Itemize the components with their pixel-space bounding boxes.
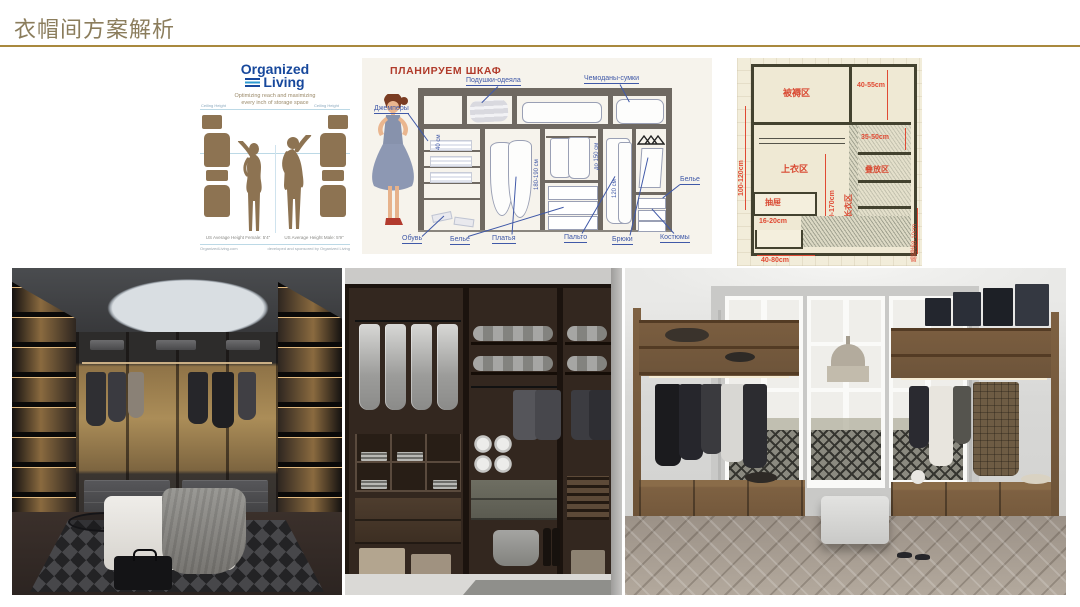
label-tag-left	[206, 170, 228, 181]
drawer-stack	[355, 498, 461, 544]
hanging-jacket	[701, 384, 723, 454]
label-dresses: Платья	[492, 235, 516, 244]
ceiling-line	[200, 109, 350, 110]
dim-drawer: 16-20cm	[759, 218, 787, 225]
drawer-e3	[638, 221, 666, 232]
wardrobe-right-bar	[666, 88, 672, 232]
hanging-garment	[108, 372, 126, 422]
slatted-drawers	[567, 476, 609, 520]
page-title: 衣帽间方案解析	[14, 12, 175, 44]
top-divider	[849, 67, 852, 123]
shelf	[471, 342, 557, 345]
right-upper-shelves	[891, 328, 1053, 378]
hanging-garment	[86, 372, 106, 426]
zone-bedding: 被褥区	[783, 86, 810, 99]
shelf	[471, 372, 557, 375]
footer-left: OrganizedLiving.com	[200, 246, 238, 251]
label-suits: Костюмы	[660, 234, 690, 243]
woman-illustration	[364, 94, 422, 234]
hanging-coat	[655, 384, 681, 466]
footer-rule	[200, 244, 350, 245]
right-shelf-1	[858, 152, 911, 155]
title-divider	[0, 45, 1080, 47]
briefcase-handle	[133, 549, 157, 561]
ceiling-label-right: Ceiling Height	[314, 103, 339, 108]
drawer-box	[753, 192, 817, 216]
tagline-line1: Optimizing reach and maximizing	[196, 93, 354, 100]
shelf	[565, 372, 611, 375]
shelf-light	[901, 378, 1047, 380]
folded-stack-3	[430, 172, 472, 183]
wardrobe-unit	[345, 284, 611, 574]
dim-bottom-line	[757, 255, 815, 256]
folded-clothes	[156, 340, 196, 350]
shelf-light	[649, 376, 789, 378]
hanging-shirt	[359, 324, 380, 410]
handbag	[493, 530, 539, 566]
female-silhouette	[234, 141, 274, 233]
glass-drawers	[471, 480, 557, 520]
rolled-blanket	[567, 356, 607, 371]
bottom-hatched-area	[801, 216, 911, 247]
shelf-light-strip	[82, 362, 272, 364]
dim-dresses: 180-190 см	[534, 159, 540, 190]
label-linen-right: Белье	[680, 176, 700, 185]
shelf-e	[636, 192, 666, 195]
wardrobe-plan-title: ПЛАНИРУЕМ ШКАФ	[390, 65, 501, 77]
hanging-garment	[128, 372, 144, 418]
garment-short-right	[320, 185, 346, 217]
hanging-garment	[238, 372, 256, 420]
label-pillows: Подушки-одеяла	[466, 77, 521, 86]
folded-stack	[361, 480, 387, 489]
label-shoes: Обувь	[402, 235, 422, 244]
hanging-shirt	[411, 324, 432, 410]
hat	[725, 352, 755, 362]
hanging-garment	[188, 372, 208, 424]
dim-skirting: 踢脚线8-10cm	[909, 224, 918, 262]
rolled-blanket	[567, 326, 607, 341]
straw-hat	[1021, 474, 1051, 484]
storage-box-right	[328, 115, 348, 129]
label-coats: Пальто	[564, 234, 587, 243]
logo-bars-icon	[245, 78, 260, 88]
side-wall	[611, 268, 622, 595]
rug	[463, 580, 622, 595]
wardrobe-left-bar	[418, 88, 424, 232]
boot	[543, 528, 551, 566]
basket-bowl	[665, 328, 709, 342]
dim-left: 100-120cm	[738, 160, 745, 196]
hanging-dress	[929, 386, 953, 466]
zone-tops: 上衣区	[781, 162, 808, 175]
window-center	[807, 296, 885, 488]
photo-walkin-closet-dark	[12, 268, 342, 595]
zone-long: 长衣区	[843, 194, 854, 218]
drawer-c1	[548, 186, 598, 200]
zone-drawer: 抽屉	[765, 197, 781, 208]
shoe-sketch-2	[454, 217, 475, 228]
shelf-c	[545, 180, 598, 183]
photo-walkin-closet-bright	[625, 268, 1066, 595]
right-shelf-2	[858, 180, 911, 183]
briefcase	[114, 556, 172, 590]
ceiling-label-left: Ceiling Height	[201, 103, 226, 108]
balcony-railing	[811, 430, 881, 480]
dim-right-line	[905, 128, 906, 150]
folded-clothes	[226, 340, 260, 350]
boot	[552, 528, 560, 566]
top-separator-2	[512, 96, 517, 124]
footer-right: developed and sponsored by Organized Liv…	[267, 246, 350, 251]
hanging-coat	[743, 384, 767, 468]
dome-drum	[827, 366, 869, 382]
garment-tall-left	[204, 133, 230, 167]
hanging-rod	[759, 138, 845, 144]
label-jumpers: Джемперы	[374, 105, 409, 114]
pillows-sketch	[469, 99, 508, 123]
hangers-icon	[637, 134, 665, 146]
dim-shelf: 40 см	[436, 135, 442, 150]
male-silhouette	[272, 135, 316, 233]
garment-tall-right	[320, 133, 346, 167]
dim-top: 40-55cm	[857, 82, 885, 89]
logo-row: Living	[196, 76, 354, 89]
hanging-garment	[212, 372, 234, 428]
dim-bottom: 40-80cm	[761, 257, 789, 264]
folded-stack	[433, 480, 457, 489]
top-shelf	[424, 124, 666, 129]
caption-female: US Average Height Female: 5'4"	[202, 235, 274, 240]
hanging-coat	[679, 384, 703, 460]
label-tag-right	[322, 170, 344, 181]
folded-stack	[397, 452, 423, 461]
shirt-sketch-2	[568, 137, 590, 179]
suitcase-small	[522, 102, 602, 123]
dim-left-line	[745, 106, 746, 210]
diagram-wardrobe-plan: ПЛАНИРУЕМ ШКАФ 180-190 см	[362, 58, 712, 254]
dim-top-line	[887, 70, 888, 120]
hanging-shirt	[385, 324, 406, 410]
suitcase-large	[616, 99, 664, 124]
dim-coats: 120 см	[612, 179, 618, 198]
hanging-garment	[909, 386, 929, 448]
top-separator-1	[462, 96, 467, 124]
folded-stack-2	[430, 156, 472, 167]
hanging-tshirt	[535, 390, 561, 440]
dim-shirts: до 150 см	[594, 143, 600, 170]
shelf-a4	[424, 198, 480, 200]
garment-short-left	[204, 185, 230, 217]
folded-stack	[361, 452, 387, 461]
frame-post-1	[463, 284, 469, 574]
left-upper-shelves	[639, 320, 799, 376]
top-separator-3	[608, 96, 613, 124]
storage-box-left	[202, 115, 222, 129]
shoe	[915, 554, 930, 560]
folded-clothes	[90, 340, 124, 350]
photo-wardrobe-brown	[345, 268, 622, 595]
checked-coat	[973, 382, 1019, 476]
ottoman	[821, 496, 889, 544]
hat-boxes	[473, 434, 513, 474]
wardrobe-top-bar	[418, 88, 672, 96]
caption-male: US Average Height Male: 5'9"	[278, 235, 350, 240]
divider-1	[480, 129, 485, 230]
wardrobe-bottom-edge	[418, 230, 672, 232]
coat-sketch-2	[618, 142, 632, 224]
rolled-blanket	[473, 326, 553, 341]
right-shelf-3	[858, 206, 911, 209]
label-trousers: Брюки	[612, 236, 633, 245]
vase	[911, 470, 925, 484]
storage-box-top	[1015, 284, 1049, 326]
frame-top	[345, 284, 611, 288]
bottom-left-cell	[755, 230, 803, 249]
hanging-rod	[355, 320, 461, 322]
zone-stack: 叠放区	[865, 164, 889, 175]
dome-cupola	[831, 344, 865, 366]
diagram-organized-living: Organized Living Optimizing reach and ma…	[196, 57, 354, 257]
hanging-garment	[953, 386, 971, 444]
hanging-shirt	[437, 324, 458, 410]
label-suitcases: Чемоданы-сумки	[584, 75, 639, 84]
shoe	[897, 552, 912, 558]
dim-right: 35-50cm	[861, 134, 889, 141]
shelf	[565, 342, 611, 345]
diagram-wardrobe-dimensions: 被褥区 40-55cm 35-50cm 叠放区 上衣区 100-120cm 14…	[737, 58, 922, 266]
label-linen: Белье	[450, 236, 470, 245]
storage-box-top	[983, 288, 1013, 326]
storage-box-top	[953, 292, 981, 326]
hat-on-cabinet	[745, 472, 777, 483]
storage-box-top	[925, 298, 951, 326]
hanging-rod	[471, 386, 557, 388]
hanging-shirt	[721, 384, 745, 462]
organized-living-logo: Organized Living	[196, 63, 354, 89]
rolled-blanket	[473, 356, 553, 371]
logo-word-bottom: Living	[263, 76, 304, 89]
knit-blanket	[162, 488, 246, 574]
dress-sketch-2	[508, 140, 532, 218]
